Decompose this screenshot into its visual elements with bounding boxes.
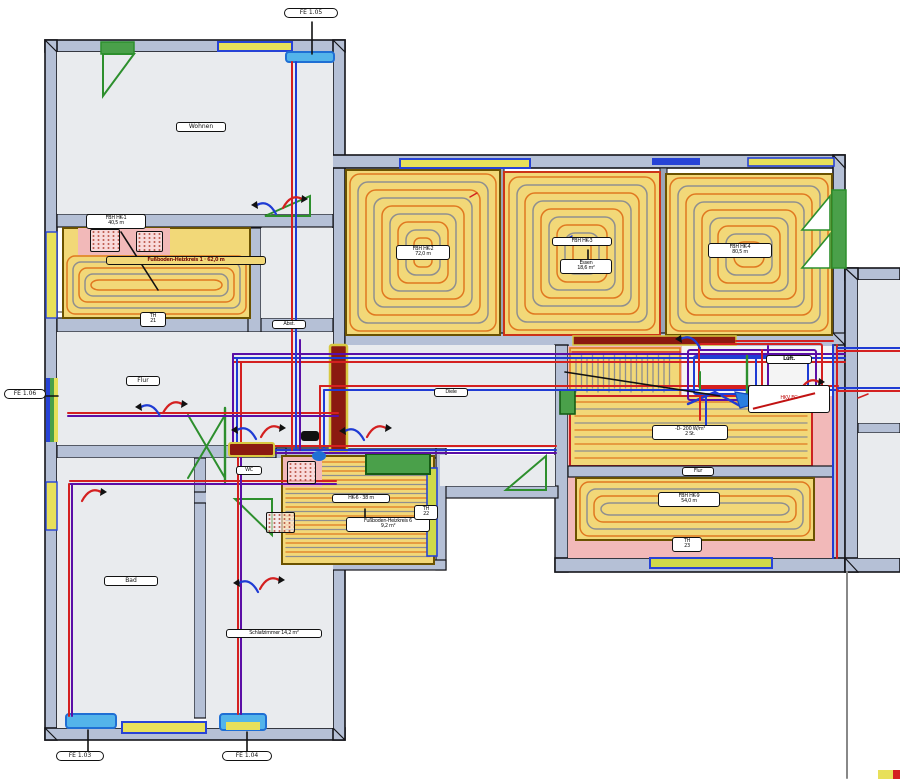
circuit-line: 72,0 m xyxy=(415,252,431,257)
room-name: Flur xyxy=(694,469,702,474)
room-name: Schlafzimmer 14,2 m² xyxy=(249,631,298,636)
label-thermostat-21: TH 21 xyxy=(140,312,166,327)
fixture-box xyxy=(136,231,163,252)
window-tag-bottom-left: FE 1.03 xyxy=(56,751,104,761)
label-hk6-tag: HK-6 · 38 m xyxy=(332,494,390,503)
tag-text: FE 1.03 xyxy=(69,753,92,759)
label-text: Lüft. xyxy=(783,357,795,362)
room-name: Abst. xyxy=(283,322,294,327)
tag-text: FE 1.06 xyxy=(14,391,37,397)
label-hk4: FBH HK-4 80,5 m xyxy=(708,243,772,258)
th-line: 23 xyxy=(684,544,690,549)
label-hk1-band: Fußboden-Heizkreis 1 · 62,0 m xyxy=(106,256,266,265)
room-area: 18,6 m² xyxy=(577,266,595,271)
room-name: Diele xyxy=(445,390,456,395)
callout-line: 9,2 m² xyxy=(381,524,396,529)
label-hk2: FBH HK-2 72,0 m xyxy=(396,245,450,260)
label-thermostat-22: TH 22 xyxy=(414,505,438,520)
label-hk1-callout: FBH HK-1 40,5 m xyxy=(86,214,146,229)
fixture-box xyxy=(90,229,120,252)
window-tag-bottom-mid: FE 1.04 xyxy=(222,751,272,761)
label-flur-mid: Flur xyxy=(682,467,714,476)
label-bad: Bad xyxy=(104,576,158,586)
th-line: 22 xyxy=(423,512,429,517)
circuit-line: 80,5 m xyxy=(732,250,748,255)
floorplan-canvas[interactable]: FE 1.05 FE 1.06 FE 1.03 FE 1.04 Wohnen F… xyxy=(0,0,900,780)
tag-text: FE 1.04 xyxy=(236,753,259,759)
label-diele: Diele xyxy=(434,388,468,397)
room-name: Flur xyxy=(137,378,148,384)
label-hk3: FBH HK-3 xyxy=(552,237,612,246)
circuit-line: 2 St. xyxy=(685,432,695,437)
circuit-line: 54,0 m xyxy=(681,499,697,504)
callout-line: 40,5 m xyxy=(108,221,124,226)
label-room-wohnen: Wohnen xyxy=(176,122,226,132)
fixture-box xyxy=(266,512,295,533)
label-abstellraum: Abst. xyxy=(272,320,306,329)
band-text: Fußboden-Heizkreis 1 · 62,0 m xyxy=(147,258,224,263)
label-hk9: FBH HK-9 54,0 m xyxy=(658,492,720,507)
window-tag-top: FE 1.05 xyxy=(284,8,338,18)
label-essen: Essen 18,6 m² xyxy=(560,259,612,274)
label-flur: Flur xyxy=(126,376,160,386)
room-name: WC xyxy=(245,468,253,473)
fixture-box xyxy=(287,461,316,484)
label-lueftung: Lüft. xyxy=(766,355,812,364)
room-name: Wohnen xyxy=(189,124,213,130)
label-thermostat-23: TH 23 xyxy=(672,537,702,552)
label-schlafzimmer: Schlafzimmer 14,2 m² xyxy=(226,629,322,638)
tag-text: FE 1.05 xyxy=(300,10,323,16)
circuit-line: FBH HK-3 xyxy=(572,239,593,244)
window-tag-left: FE 1.06 xyxy=(4,389,46,399)
room-name: Bad xyxy=(125,578,137,584)
label-d200: -D- 200 W/m² 2 St. xyxy=(652,425,728,440)
circuit-line: HK-6 · 38 m xyxy=(348,496,374,501)
label-hkv-manifold: HKV EG xyxy=(748,385,830,413)
th-line: 21 xyxy=(150,319,156,324)
label-wc: WC xyxy=(236,466,262,475)
